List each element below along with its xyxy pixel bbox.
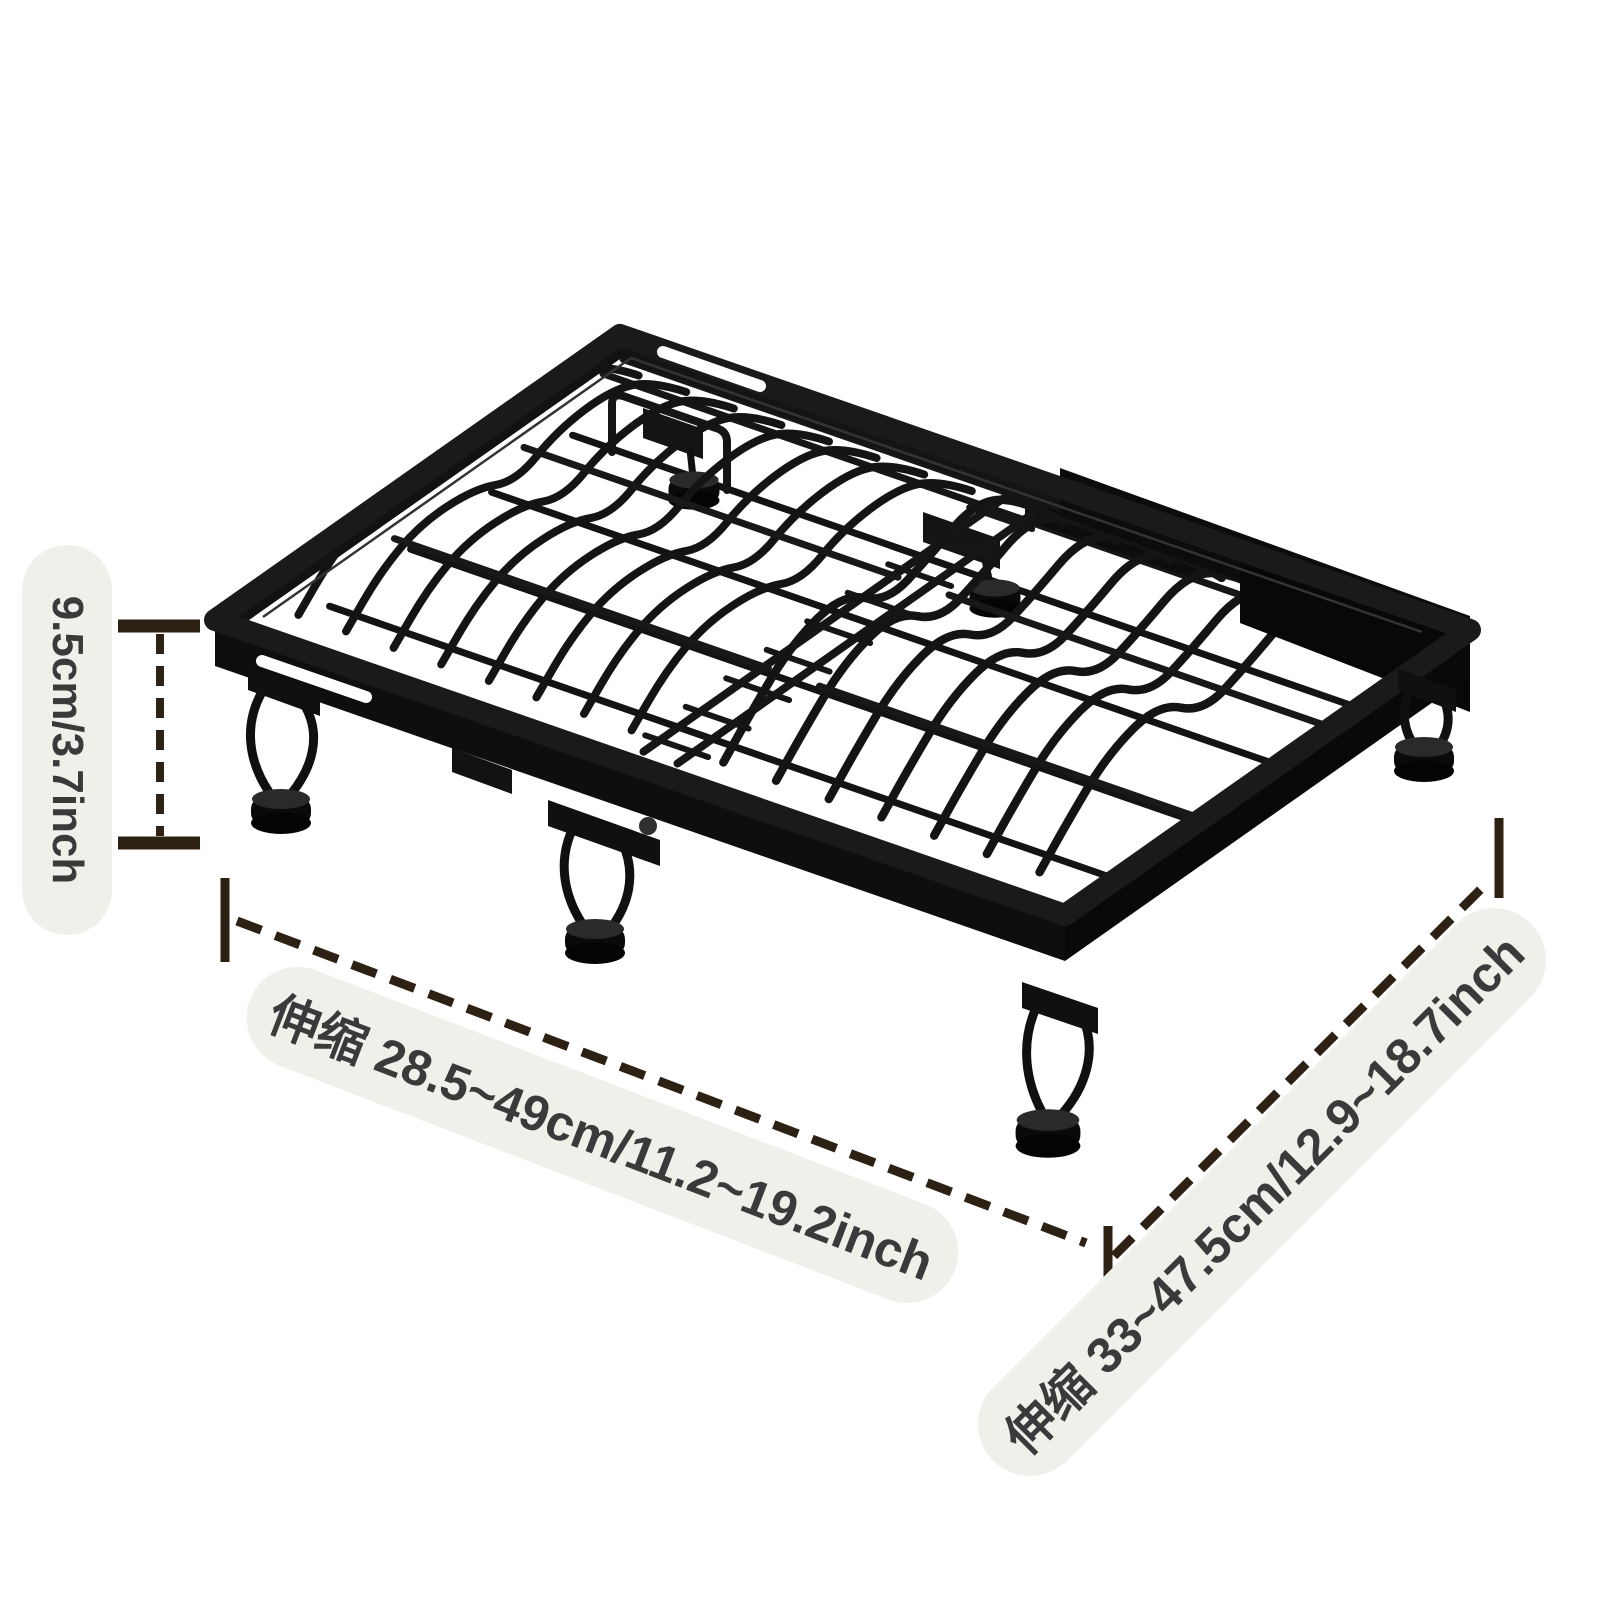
figure-canvas (0, 0, 1600, 1600)
height-dimension-line (118, 626, 200, 843)
height-dimension-label: 9.5cm/3.7inch (22, 545, 112, 935)
product-dimension-figure: 9.5cm/3.7inch 伸缩 28.5~49cm/11.2~19.2inch… (0, 0, 1600, 1600)
